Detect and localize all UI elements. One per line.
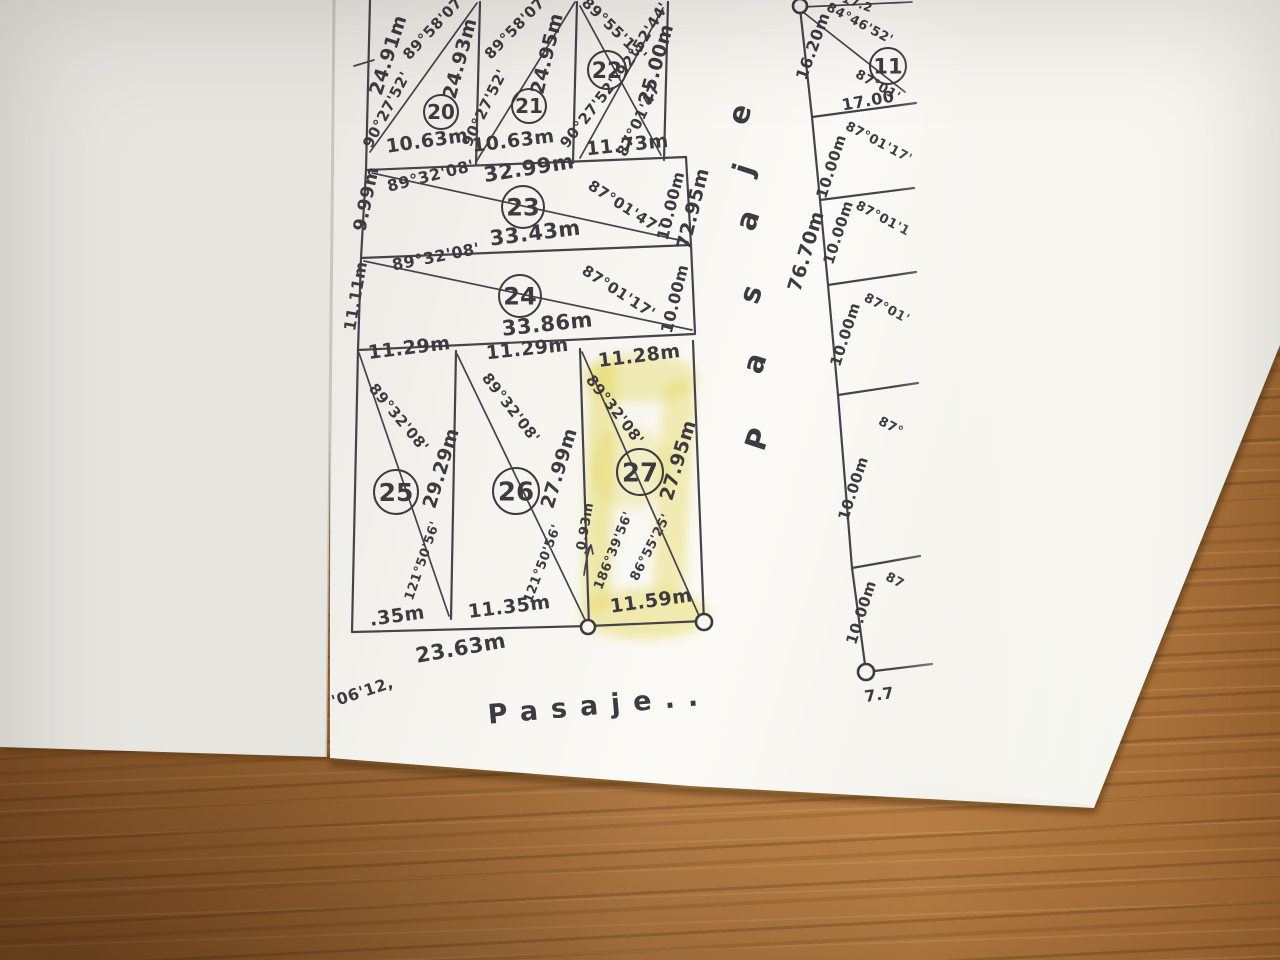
under-sheet-paper: [0, 0, 334, 757]
plat-map-drawing: 24.91m90°27'52'89°58'07'24.93m10.63m90°2…: [0, 0, 1280, 960]
survey-monument: [858, 664, 874, 680]
overexposure-wash: [893, 0, 1280, 806]
lot-number: 21: [515, 94, 543, 118]
lot-number: 26: [498, 477, 534, 507]
lot-number: 25: [379, 478, 414, 507]
lot-number: 24: [503, 283, 536, 311]
survey-monument: [696, 614, 712, 630]
lot-number: 20: [427, 100, 455, 124]
photo-of-plat-map: 24.91m90°27'52'89°58'07'24.93m10.63m90°2…: [0, 0, 1280, 960]
survey-monument: [793, 0, 807, 13]
lot-number: 23: [506, 194, 539, 222]
lot-number: 22: [592, 59, 623, 84]
lot-number: 27: [622, 458, 658, 488]
under-sheet: [0, 0, 334, 758]
lot-number-circle: 21: [512, 89, 546, 123]
lot-number-circle: 20: [424, 95, 458, 129]
survey-monument: [581, 620, 595, 634]
